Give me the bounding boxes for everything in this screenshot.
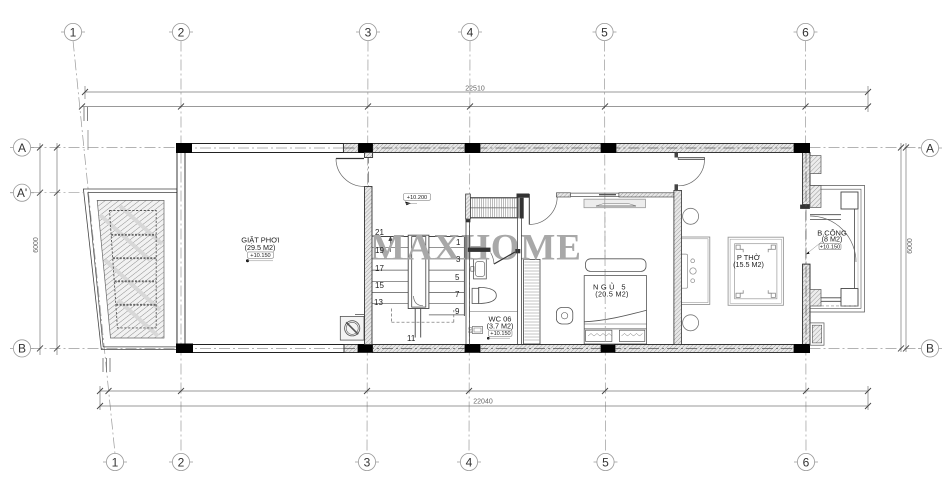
svg-text:6000: 6000 xyxy=(33,237,40,253)
svg-text:(3.7 M2): (3.7 M2) xyxy=(487,321,514,330)
svg-text:+10.200: +10.200 xyxy=(407,195,427,201)
svg-text:1: 1 xyxy=(112,455,119,469)
svg-text:5: 5 xyxy=(601,25,608,39)
svg-text:A': A' xyxy=(17,186,27,200)
svg-text:5: 5 xyxy=(455,273,460,282)
svg-text:+10.150: +10.150 xyxy=(250,253,270,259)
svg-text:11: 11 xyxy=(407,334,416,343)
svg-text:B: B xyxy=(926,342,934,356)
svg-text:1: 1 xyxy=(70,25,77,39)
svg-text:2: 2 xyxy=(178,25,185,39)
svg-text:15: 15 xyxy=(375,281,384,290)
svg-text:3: 3 xyxy=(456,255,461,264)
svg-text:5: 5 xyxy=(602,455,609,469)
svg-text:4: 4 xyxy=(467,25,474,39)
svg-text:B: B xyxy=(18,342,26,356)
svg-text:(15.5 M2): (15.5 M2) xyxy=(733,260,764,269)
svg-text:+10.150: +10.150 xyxy=(490,331,510,337)
svg-text:A: A xyxy=(926,141,934,155)
svg-text:3: 3 xyxy=(364,455,371,469)
svg-text:22510: 22510 xyxy=(465,86,485,93)
svg-text:6000: 6000 xyxy=(907,238,914,254)
svg-text:19: 19 xyxy=(375,246,384,255)
svg-text:2: 2 xyxy=(178,455,185,469)
svg-text:21: 21 xyxy=(375,228,384,237)
svg-text:6: 6 xyxy=(802,25,809,39)
svg-text:13: 13 xyxy=(374,298,383,307)
svg-text:4: 4 xyxy=(466,455,473,469)
svg-text:17: 17 xyxy=(375,264,384,273)
svg-text:(20.5 M2): (20.5 M2) xyxy=(595,290,628,299)
svg-text:A: A xyxy=(18,141,26,155)
svg-text:6: 6 xyxy=(803,455,810,469)
svg-text:9: 9 xyxy=(455,307,460,316)
svg-text:22040: 22040 xyxy=(473,399,493,406)
svg-text:7: 7 xyxy=(455,290,460,299)
svg-text:(8 M2): (8 M2) xyxy=(822,234,843,243)
svg-text:3: 3 xyxy=(365,25,372,39)
svg-text:1: 1 xyxy=(456,238,461,247)
svg-text:(29.5 M2): (29.5 M2) xyxy=(245,243,276,252)
svg-text:+10.150: +10.150 xyxy=(820,245,840,251)
